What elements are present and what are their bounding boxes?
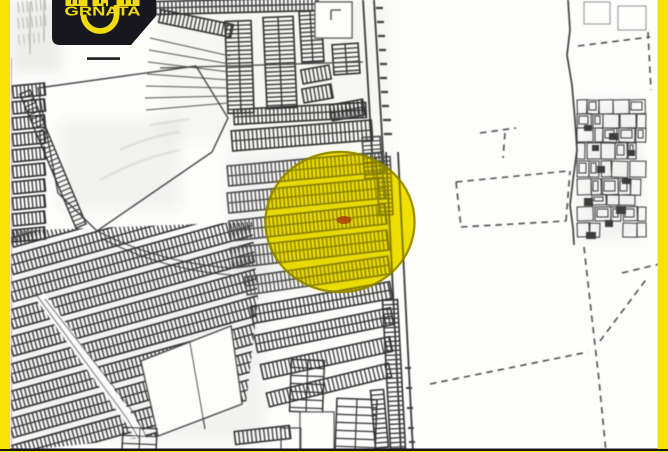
svg-text:GRNATA: GRNATA — [65, 4, 142, 19]
